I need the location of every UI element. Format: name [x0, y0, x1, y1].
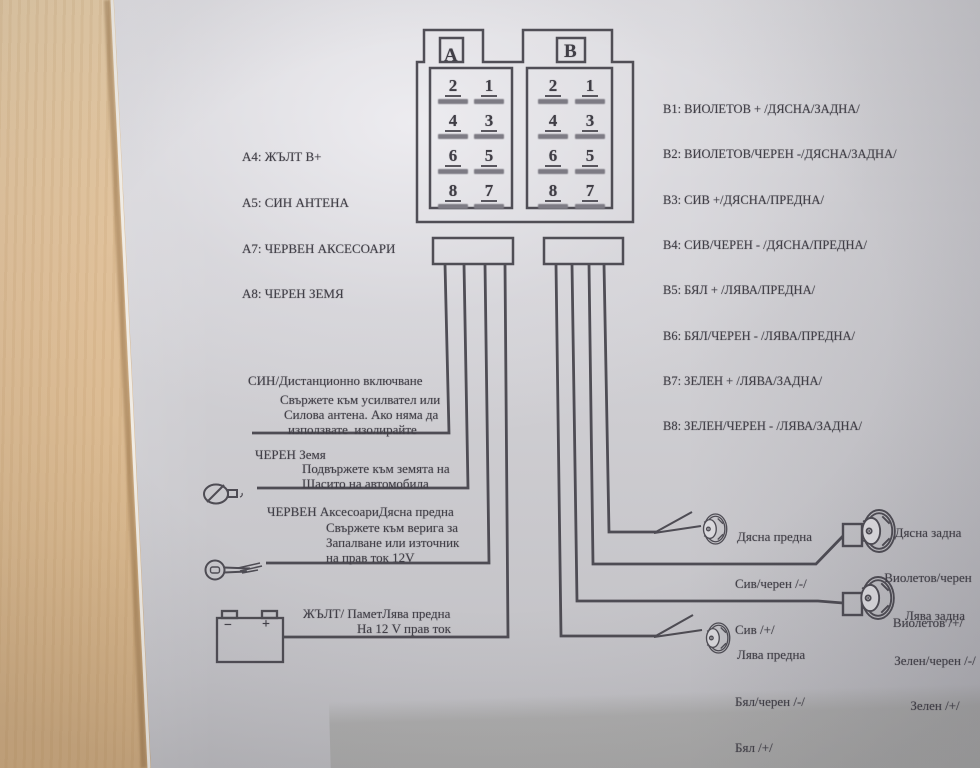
note-accessory-line: на прав ток 12V: [326, 550, 415, 565]
speaker-line: Зелен/черен /-/: [884, 653, 980, 668]
note-ground-line: Подвържете към земята на: [302, 461, 450, 476]
rear-right-speaker-plug: [843, 524, 862, 546]
connector-a-strain-relief: [433, 238, 513, 264]
wire-fork-front-right: [654, 512, 701, 533]
ground-bolt-icon: [204, 485, 242, 504]
pin-legend-b: B1: ВИОЛЕТОВ + /ДЯСНА/ЗАДНА/ B2: ВИОЛЕТО…: [663, 72, 897, 464]
note-remote-line: Силова антена. Ако няма да: [284, 407, 438, 422]
legend-line: B3: СИВ +/ДЯСНА/ПРЕДНА/: [663, 193, 897, 208]
note-ground-line: Шасито на автомобила: [302, 476, 429, 491]
pin-a7: 7: [471, 181, 507, 209]
note-memory-title: ЖЪЛТ/ ПаметЛява предна: [303, 606, 450, 621]
paper-edge-highlight: [112, 0, 149, 768]
note-memory-line: На 12 V прав ток: [357, 621, 451, 636]
legend-line: A4: ЖЪЛТ B+: [242, 149, 395, 164]
speaker-line: Лява предна: [735, 647, 805, 663]
pin-a4: 4: [435, 111, 471, 139]
pin-b7: 7: [572, 181, 608, 209]
pin-a5: 5: [471, 146, 507, 174]
connector-b-strain-relief: [544, 238, 623, 264]
legend-line: B2: ВИОЛЕТОВ/ЧЕРЕН -/ДЯСНА/ЗАДНА/: [663, 147, 897, 162]
note-remote-line: Свържете към усилвател или: [280, 392, 440, 407]
front-right-speaker-icon: [704, 514, 727, 544]
legend-line: B8: ЗЕЛЕН/ЧЕРЕН - /ЛЯВА/ЗАДНА/: [663, 419, 897, 434]
pin-a3: 3: [471, 111, 507, 139]
speaker-line: Сив/черен /-/: [735, 576, 812, 592]
note-ground-title: ЧЕРЕН Земя: [255, 447, 326, 462]
note-remote-title: СИН/Дистанционно включване: [248, 373, 422, 388]
speaker-line: Дясна задна: [872, 525, 980, 540]
speaker-line: Дясна предна: [735, 529, 812, 545]
pin-a1: 1: [471, 76, 507, 104]
note-accessory-title: ЧЕРВЕН АксесоариДясна предна: [267, 504, 454, 519]
legend-line: A8: ЧЕРЕН ЗЕМЯ: [242, 286, 395, 301]
paper-edge-shadow: [107, 0, 144, 768]
speaker-line: Бял /+/: [735, 740, 805, 756]
legend-line: A5: СИН АНТЕНА: [242, 195, 395, 210]
ignition-key-icon: [206, 561, 263, 580]
pin-b6: 6: [535, 146, 571, 174]
speaker-label-rear-left: Лява задна Зелен/черен /-/ Зелен /+/: [884, 578, 980, 743]
note-remote-line: използвате изолирайте: [288, 422, 417, 437]
legend-line: B4: СИВ/ЧЕРЕН - /ДЯСНА/ПРЕДНА/: [663, 238, 897, 253]
pin-a8: 8: [435, 181, 471, 209]
wire-fork-front-left: [654, 615, 702, 637]
photographed-wiring-manual-page: A B 2 1 4 3 6 5 8 7 2 1 4 3 6 5 8 7 A4: …: [0, 0, 980, 768]
note-accessory-line: Запалване или източник: [326, 535, 459, 550]
connector-b-letter: B: [564, 44, 578, 59]
connector-a-letter: A: [444, 48, 459, 63]
speaker-line: Бял/черен /-/: [735, 694, 805, 710]
battery-plus-sign: +: [262, 617, 270, 632]
note-accessory-line: Свържете към верига за: [326, 520, 458, 535]
legend-line: B1: ВИОЛЕТОВ + /ДЯСНА/ЗАДНА/: [663, 102, 897, 117]
legend-line: B6: БЯЛ/ЧЕРЕН - /ЛЯВА/ПРЕДНА/: [663, 329, 897, 344]
rear-left-speaker-plug: [843, 593, 862, 615]
pin-b8: 8: [535, 181, 571, 209]
legend-line: B5: БЯЛ + /ЛЯВА/ПРЕДНА/: [663, 283, 897, 298]
pin-a2: 2: [435, 76, 471, 104]
pin-b5: 5: [572, 146, 608, 174]
legend-line: B7: ЗЕЛЕН + /ЛЯВА/ЗАДНА/: [663, 374, 897, 389]
battery-minus-sign: −: [224, 618, 232, 633]
speaker-line: Зелен /+/: [884, 698, 980, 713]
pin-legend-a: A4: ЖЪЛТ B+ A5: СИН АНТЕНА A7: ЧЕРВЕН АК…: [242, 119, 395, 332]
pin-b1: 1: [572, 76, 608, 104]
front-left-speaker-icon: [707, 623, 730, 653]
legend-line: A7: ЧЕРВЕН АКСЕСОАРИ: [242, 241, 395, 256]
wire-front-right-speaker: [604, 264, 656, 532]
speaker-line: Лява задна: [884, 608, 980, 623]
pin-a6: 6: [435, 146, 471, 174]
pin-b2: 2: [535, 76, 571, 104]
pin-b3: 3: [572, 111, 608, 139]
speaker-label-front-left: Лява предна Бял/черен /-/ Бял /+/: [735, 616, 805, 768]
pin-b4: 4: [535, 111, 571, 139]
